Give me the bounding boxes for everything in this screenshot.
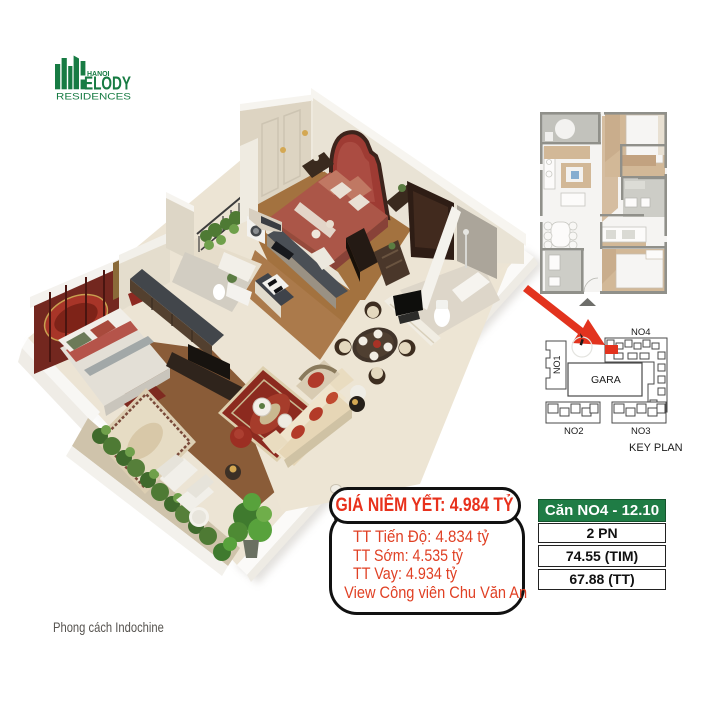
svg-text:NO4: NO4 <box>631 327 651 338</box>
svg-text:NO2: NO2 <box>564 426 584 437</box>
svg-text:NO3: NO3 <box>631 426 651 437</box>
svg-text:NO1: NO1 <box>552 355 562 374</box>
svg-text:GARA: GARA <box>591 374 621 386</box>
svg-text:KEY PLAN: KEY PLAN <box>629 442 683 454</box>
